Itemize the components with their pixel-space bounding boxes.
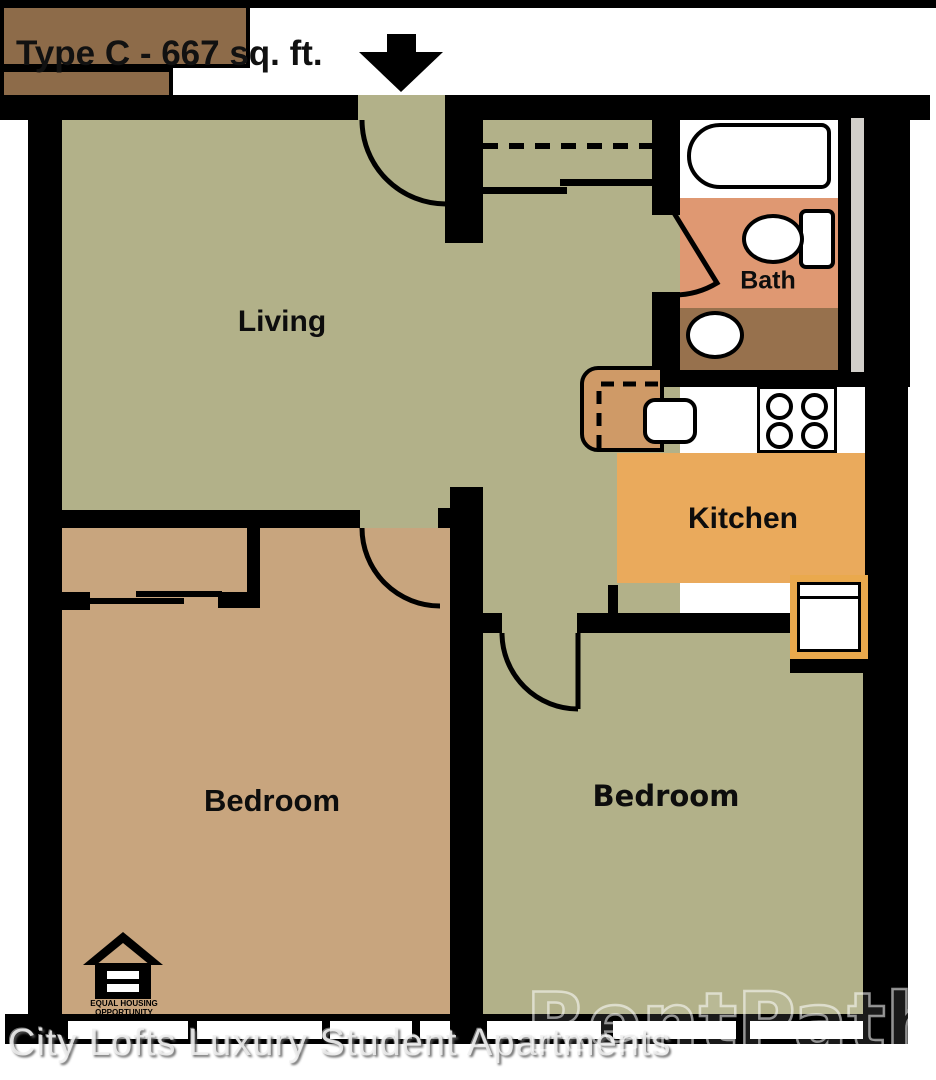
room-label-kitchen: Kitchen (688, 502, 798, 536)
eho-equals-bar (107, 984, 139, 992)
dashed-lines-layer (0, 0, 936, 1080)
refrigerator-icon (797, 582, 861, 652)
room-label-bedroom-left: Bedroom (204, 783, 340, 819)
room-label-living: Living (238, 305, 326, 339)
refrigerator-divider (800, 596, 858, 599)
floor-plan: Type C - 667 sq. ft. Living Bath Kitchen… (0, 0, 936, 1080)
eho-house-body (95, 963, 151, 999)
equal-housing-logo-icon: EQUAL HOUSING OPPORTUNITY (78, 930, 170, 1014)
rentpath-text: RentPath (526, 976, 936, 1069)
burner-icon (801, 422, 828, 449)
down-arrow-icon (359, 52, 443, 92)
sliding-door-icon (136, 591, 222, 597)
sliding-door-icon (560, 179, 652, 186)
burner-icon (801, 393, 828, 420)
eho-equals-bar (107, 971, 139, 979)
plan-title: Type C - 667 sq. ft. (16, 34, 323, 74)
room-label-bath: Bath (740, 267, 796, 296)
sliding-door-icon (88, 598, 184, 604)
sliding-door-icon (483, 187, 567, 194)
rentpath-watermark: RentPath® (526, 976, 936, 1069)
burner-icon (766, 393, 793, 420)
eho-line1: EQUAL HOUSING (90, 999, 157, 1008)
stove-icon (757, 386, 837, 453)
kitchen-sink-icon (643, 398, 697, 444)
room-label-bedroom-right: Bedroom (593, 779, 740, 813)
burner-icon (766, 422, 793, 449)
eho-text: EQUAL HOUSING OPPORTUNITY (64, 1000, 184, 1018)
eho-roof-inner (96, 943, 150, 965)
eho-line2: OPPORTUNITY (95, 1008, 153, 1017)
refrigerator-trim (790, 575, 868, 659)
